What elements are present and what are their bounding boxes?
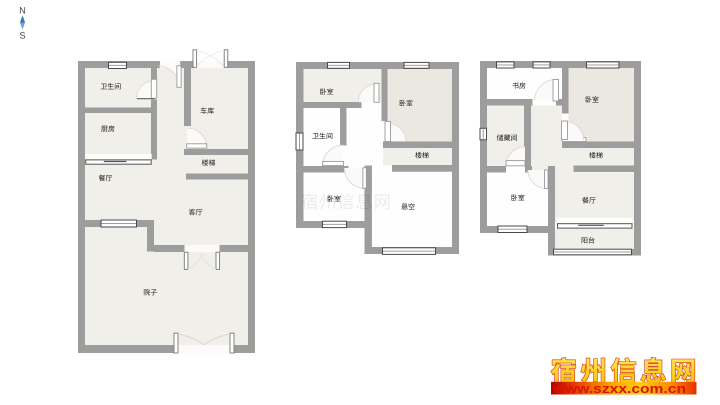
svg-text:www.szxx.com.cn: www.szxx.com.cn xyxy=(552,382,686,396)
